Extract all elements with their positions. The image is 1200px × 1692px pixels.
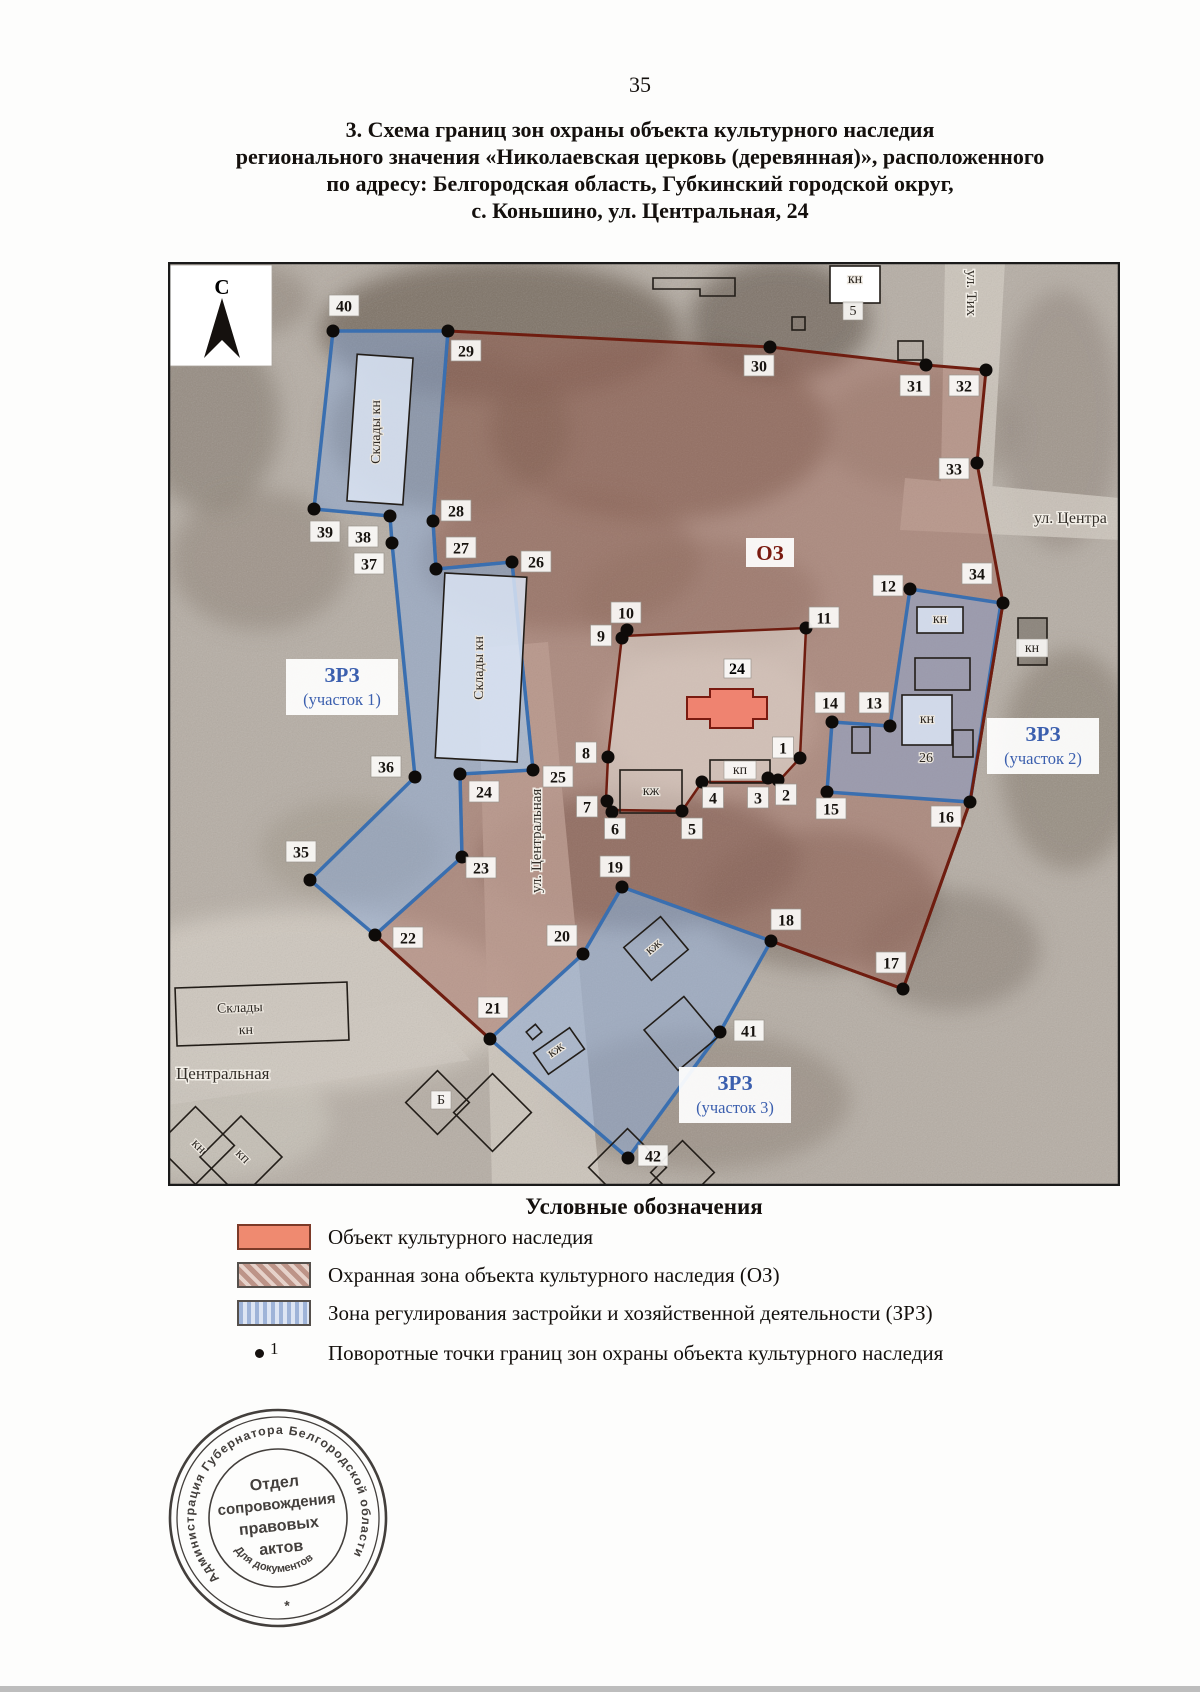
svg-text:12: 12 xyxy=(880,579,896,596)
building-label: кн xyxy=(1016,639,1048,657)
svg-text:(участок 3): (участок 3) xyxy=(696,1098,774,1117)
stamp-bottom-symbol: * xyxy=(284,1597,292,1614)
oz-swatch-icon xyxy=(237,1262,311,1288)
svg-text:ЗРЗ: ЗРЗ xyxy=(324,663,359,687)
scan-edge xyxy=(0,1686,1200,1692)
north-label: С xyxy=(214,275,229,299)
street-label: Центральная xyxy=(176,1064,270,1083)
svg-text:кн: кн xyxy=(1025,641,1040,656)
building-label: Б xyxy=(431,1091,451,1109)
svg-text:5: 5 xyxy=(850,304,857,319)
map-svg: 24 ОЗ С ул. Тихул. Центраул. Центральная… xyxy=(168,262,1120,1186)
document-page: 35 3. Схема границ зон охраны объекта ку… xyxy=(0,0,1200,1692)
svg-text:Склады кн: Склады кн xyxy=(369,400,384,464)
object-number-label: 24 xyxy=(724,659,751,678)
svg-text:17: 17 xyxy=(883,956,899,973)
svg-text:4: 4 xyxy=(709,791,717,808)
legend-item-zrz: Зона регулирования застройки и хозяйстве… xyxy=(237,1298,311,1328)
zrz-zone-label-2: ЗРЗ(участок 2) xyxy=(987,718,1099,774)
svg-text:ЗРЗ: ЗРЗ xyxy=(717,1071,752,1095)
svg-text:ОЗ: ОЗ xyxy=(756,541,783,565)
svg-text:3: 3 xyxy=(754,791,762,808)
stamp-center-line: правовых xyxy=(238,1514,320,1539)
svg-text:25: 25 xyxy=(550,770,566,787)
legend-item-points: 1 Поворотные точки границ зон охраны объ… xyxy=(237,1338,937,1368)
svg-text:40: 40 xyxy=(336,299,352,316)
svg-text:30: 30 xyxy=(751,359,767,376)
svg-text:42: 42 xyxy=(645,1149,661,1166)
svg-text:20: 20 xyxy=(554,929,570,946)
svg-text:33: 33 xyxy=(946,462,962,479)
svg-text:11: 11 xyxy=(816,611,831,628)
svg-text:31: 31 xyxy=(907,379,923,396)
svg-text:24: 24 xyxy=(476,785,492,802)
svg-text:22: 22 xyxy=(400,931,416,948)
legend-item-label: Охранная зона объекта культурного наслед… xyxy=(328,1263,780,1288)
title-line: по адресу: Белгородская область, Губкинс… xyxy=(90,170,1190,197)
svg-text:кн: кн xyxy=(933,612,948,627)
north-arrow-box: С xyxy=(170,265,272,366)
legend-item-label: Зона регулирования застройки и хозяйстве… xyxy=(328,1301,933,1326)
point-dot-icon xyxy=(255,1349,264,1358)
official-stamp: Администрация Губернатора Белгородской о… xyxy=(151,1391,406,1646)
svg-text:7: 7 xyxy=(583,800,591,817)
title-line: 3. Схема границ зон охраны объекта культ… xyxy=(90,116,1190,143)
svg-text:6: 6 xyxy=(611,822,619,839)
svg-text:26: 26 xyxy=(919,751,933,766)
svg-text:27: 27 xyxy=(453,541,469,558)
svg-text:14: 14 xyxy=(822,696,838,713)
svg-text:5: 5 xyxy=(688,822,696,839)
svg-text:19: 19 xyxy=(607,860,623,877)
building-label: кн xyxy=(933,612,948,627)
building-label: Склады кн xyxy=(472,636,487,700)
svg-text:29: 29 xyxy=(458,344,474,361)
zrz-swatch-icon xyxy=(237,1300,311,1326)
street-label: ул. Центральная xyxy=(529,789,545,893)
legend-title: Условные обозначения xyxy=(144,1194,1144,1220)
svg-text:16: 16 xyxy=(938,810,954,827)
svg-text:34: 34 xyxy=(969,567,985,584)
page-number: 35 xyxy=(80,72,1200,98)
svg-text:28: 28 xyxy=(448,504,464,521)
svg-text:39: 39 xyxy=(317,525,333,542)
svg-text:24: 24 xyxy=(729,661,745,678)
svg-text:кж: кж xyxy=(643,784,660,799)
svg-text:36: 36 xyxy=(378,760,394,777)
svg-text:Склады: Склады xyxy=(217,1000,264,1017)
svg-text:13: 13 xyxy=(866,696,882,713)
legend-item-object: Объект культурного наследия xyxy=(237,1222,311,1252)
svg-text:(участок 1): (участок 1) xyxy=(303,690,381,709)
building-label: 26 xyxy=(919,751,933,766)
svg-text:9: 9 xyxy=(597,629,605,646)
stamp-center-line: актов xyxy=(258,1538,304,1560)
page-title: 3. Схема границ зон охраны объекта культ… xyxy=(90,116,1190,224)
svg-text:ЗРЗ: ЗРЗ xyxy=(1025,722,1060,746)
building-label: Склады кн xyxy=(369,400,384,464)
building-label: кн xyxy=(848,272,863,287)
legend-item-label: Объект культурного наследия xyxy=(328,1225,593,1250)
svg-text:38: 38 xyxy=(355,530,371,547)
building-label: Склады xyxy=(217,1000,264,1017)
point-symbol-number: 1 xyxy=(270,1339,279,1359)
building-label: кн xyxy=(920,712,935,727)
oz-zone-label: ОЗ xyxy=(746,538,794,567)
zrz-zone-label-3: ЗРЗ(участок 3) xyxy=(679,1067,791,1123)
building-label: кн xyxy=(238,1023,253,1039)
stamp-center-line: Отдел xyxy=(249,1473,300,1495)
svg-text:кн: кн xyxy=(920,712,935,727)
title-line: с. Коньшино, ул. Центральная, 24 xyxy=(90,197,1190,224)
zrz-zone-label-1: ЗРЗ(участок 1) xyxy=(286,659,398,715)
building-label: 5 xyxy=(843,302,863,320)
title-line: регионального значения «Николаевская цер… xyxy=(90,143,1190,170)
svg-text:(участок 2): (участок 2) xyxy=(1004,749,1082,768)
svg-text:10: 10 xyxy=(618,606,634,623)
svg-text:15: 15 xyxy=(823,802,839,819)
svg-text:Склады кн: Склады кн xyxy=(472,636,487,700)
svg-text:41: 41 xyxy=(741,1024,757,1041)
svg-text:35: 35 xyxy=(293,845,309,862)
svg-text:8: 8 xyxy=(582,746,590,763)
svg-text:23: 23 xyxy=(473,861,489,878)
svg-text:26: 26 xyxy=(528,555,544,572)
svg-text:кп: кп xyxy=(733,763,748,778)
svg-text:кн: кн xyxy=(238,1023,253,1039)
building-label: кп xyxy=(724,761,756,779)
street-label: ул. Тих xyxy=(963,270,979,317)
protection-zones-map: 24 ОЗ С ул. Тихул. Центраул. Центральная… xyxy=(168,262,1120,1186)
svg-text:1: 1 xyxy=(779,741,787,758)
stamp-center-line: сопровождения xyxy=(217,1490,337,1519)
svg-text:32: 32 xyxy=(956,379,972,396)
building-label: кж xyxy=(643,784,660,799)
legend-item-label: Поворотные точки границ зон охраны объек… xyxy=(328,1341,943,1366)
svg-text:21: 21 xyxy=(485,1001,501,1018)
street-label: ул. Центра xyxy=(1034,510,1107,527)
svg-text:2: 2 xyxy=(782,788,790,805)
svg-text:37: 37 xyxy=(361,557,377,574)
svg-text:Б: Б xyxy=(437,1093,445,1108)
svg-text:18: 18 xyxy=(778,913,794,930)
object-swatch-icon xyxy=(237,1224,311,1250)
legend-item-oz: Охранная зона объекта культурного наслед… xyxy=(237,1260,311,1290)
svg-text:кн: кн xyxy=(848,272,863,287)
